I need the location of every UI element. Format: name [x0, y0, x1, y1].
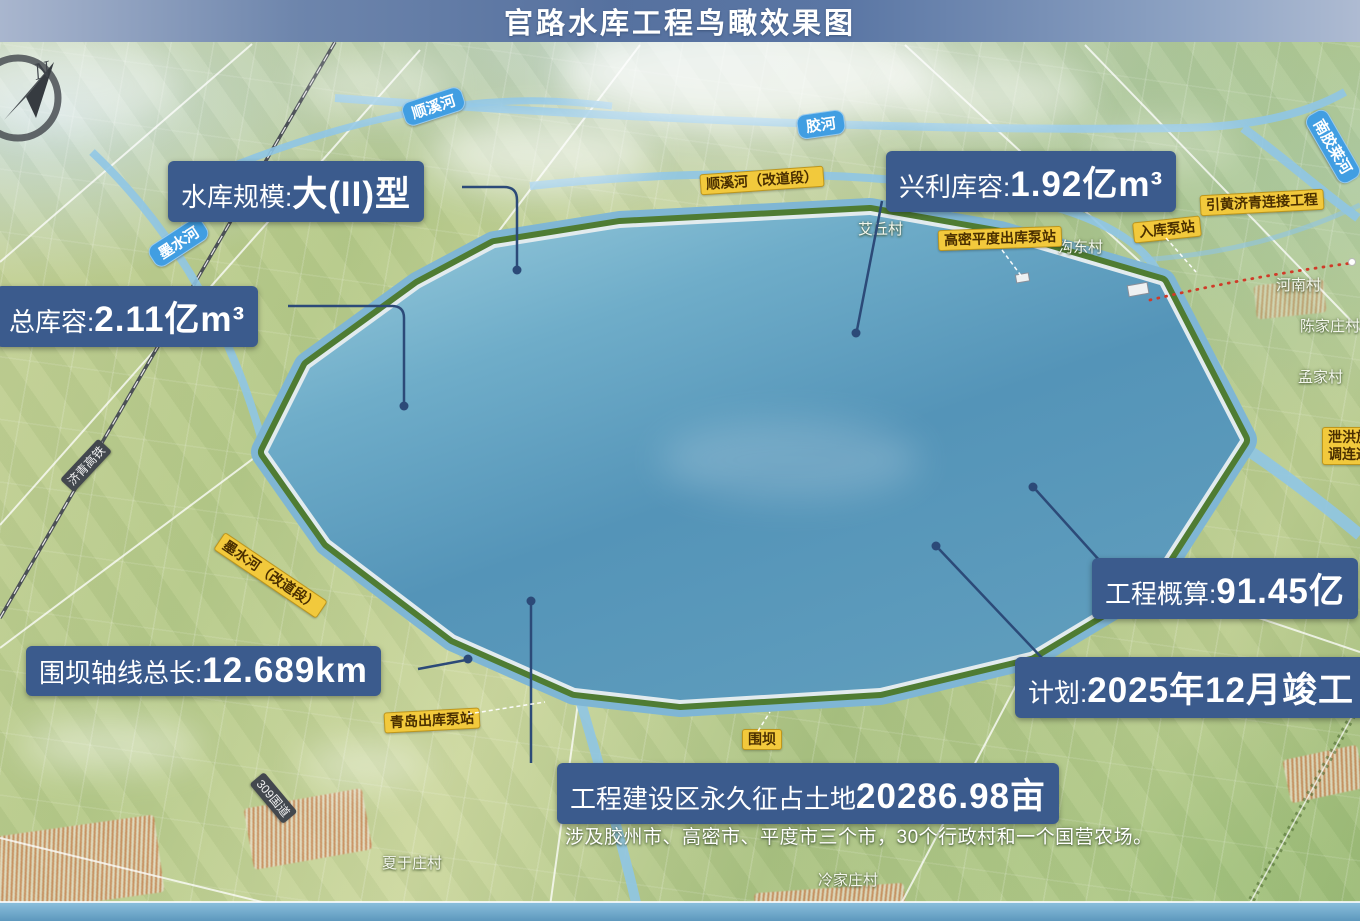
callout-label: 工程建设区永久征占土地	[570, 779, 856, 816]
callout-label: 工程概算:	[1105, 574, 1216, 611]
callout-value: 2025年12月竣工	[1087, 662, 1354, 713]
poster: N 官路水库工程鸟瞰效果图 水库规模:大(II)型 总库容:2.11亿m³ 兴利…	[0, 0, 1360, 921]
callout-label: 总库容:	[9, 302, 94, 339]
title-bar: 官路水库工程鸟瞰效果图	[0, 0, 1360, 42]
callout-label: 围坝轴线总长:	[39, 653, 202, 690]
callout-value: 1.92亿m³	[1010, 156, 1163, 207]
callout-reservoir-scale: 水库规模:大(II)型	[168, 161, 424, 222]
callout-value: 91.45亿	[1216, 563, 1345, 614]
callout-value: 大(II)型	[292, 166, 411, 217]
callout-label: 兴利库容:	[899, 167, 1010, 204]
callout-label: 计划:	[1028, 673, 1087, 710]
callout-total-capacity: 总库容:2.11亿m³	[0, 286, 258, 347]
callout-label: 水库规模:	[181, 177, 292, 214]
leader-lines	[288, 187, 1100, 763]
callout-beneficial-capacity: 兴利库容:1.92亿m³	[886, 151, 1176, 212]
callout-land-occupation: 工程建设区永久征占土地20286.98亩	[557, 763, 1059, 824]
callout-value: 12.689km	[202, 651, 368, 691]
callout-plan: 计划:2025年12月竣工	[1015, 657, 1360, 718]
land-note: 涉及胶州市、高密市、平度市三个市，30个行政村和一个国营农场。	[565, 822, 1153, 849]
callout-value: 20286.98亩	[856, 768, 1046, 819]
red-dotted-route	[1150, 259, 1356, 301]
compass-icon: N	[0, 56, 58, 138]
callout-value: 2.11亿m³	[94, 291, 245, 342]
page-title: 官路水库工程鸟瞰效果图	[504, 0, 856, 42]
callout-estimate: 工程概算:91.45亿	[1092, 558, 1358, 619]
leader-dots	[400, 266, 1038, 664]
callout-dam-axis-length: 围坝轴线总长:12.689km	[26, 646, 381, 696]
